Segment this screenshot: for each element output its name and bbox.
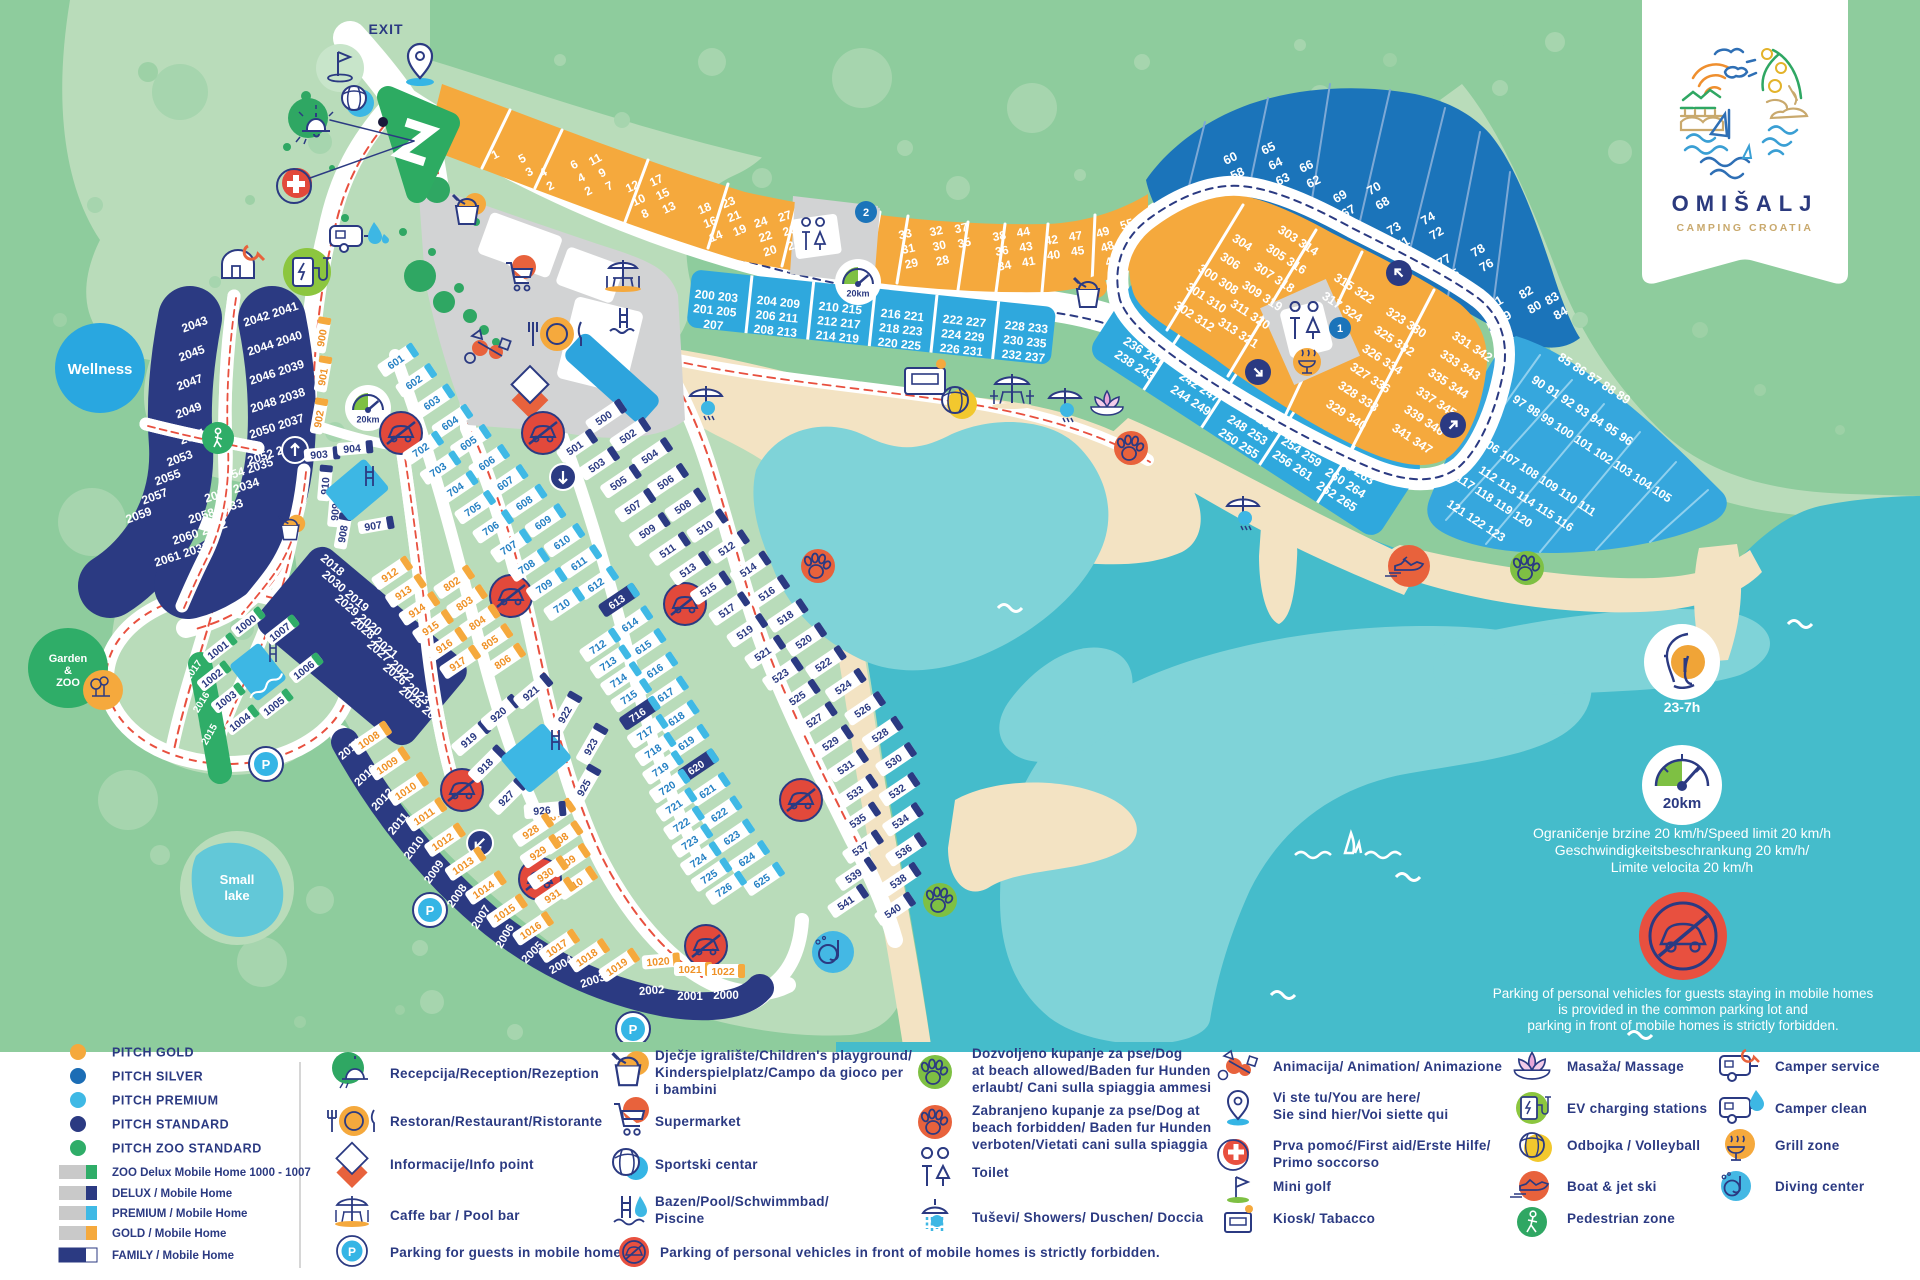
svg-text:Odbojka / Volleyball: Odbojka / Volleyball [1567,1138,1700,1153]
svg-text:Bazen/Pool/Schwimmbad/: Bazen/Pool/Schwimmbad/ [655,1194,829,1209]
svg-text:Dozvoljeno kupanje za pse/Dog: Dozvoljeno kupanje za pse/Dog [972,1046,1182,1061]
svg-text:Wellness: Wellness [68,361,133,378]
svg-text:P: P [348,1245,356,1259]
svg-text:2000: 2000 [713,990,739,1002]
svg-text:DELUX / Mobile Home: DELUX / Mobile Home [112,1188,232,1200]
svg-text:23-7h: 23-7h [1664,699,1701,715]
svg-text:Animacija/ Animation/ Animazio: Animacija/ Animation/ Animazione [1273,1059,1502,1074]
svg-text:PREMIUM / Mobile Home: PREMIUM / Mobile Home [112,1208,247,1220]
svg-text:Smalllake: Smalllake [220,872,255,903]
svg-text:erlaubt/ Cani sulla spiaggia a: erlaubt/ Cani sulla spiaggia ammesi [972,1080,1211,1095]
svg-text:Restoran/Restaurant/Ristorante: Restoran/Restaurant/Ristorante [390,1114,602,1129]
svg-text:PITCH SILVER: PITCH SILVER [112,1070,203,1084]
svg-text:Caffe bar / Pool bar: Caffe bar / Pool bar [390,1208,520,1223]
svg-text:1022: 1022 [711,966,735,978]
svg-text:2002: 2002 [638,984,665,998]
svg-text:OMIŠALJ: OMIŠALJ [1672,191,1819,216]
svg-text:Kinderspielplatz/Campo da gioc: Kinderspielplatz/Campo da gioco per [655,1065,904,1080]
svg-text:Dječje igralište/Children's pl: Dječje igralište/Children's playground/ [655,1048,912,1063]
svg-text:Sportski centar: Sportski centar [655,1157,758,1172]
svg-text:PITCH PREMIUM: PITCH PREMIUM [112,1094,219,1108]
svg-text:Grill zone: Grill zone [1775,1138,1840,1153]
svg-text:Tuševi/ Showers/ Duschen/ Docc: Tuševi/ Showers/ Duschen/ Doccia [972,1210,1204,1225]
svg-text:Parking of personal vehicles i: Parking of personal vehicles in front of… [660,1245,1160,1260]
svg-text:P: P [426,903,435,918]
svg-text:2001: 2001 [677,991,703,1003]
svg-text:Zabranjeno kupanje za pse/Dog: Zabranjeno kupanje za pse/Dog at [972,1103,1200,1118]
svg-text:1020: 1020 [646,955,670,969]
svg-text:216 221218 223220 225: 216 221218 223220 225 [877,306,925,353]
svg-text:Piscine: Piscine [655,1211,705,1226]
svg-text:Camper service: Camper service [1775,1059,1880,1074]
svg-text:Pedestrian zone: Pedestrian zone [1567,1211,1675,1226]
svg-text:Supermarket: Supermarket [655,1114,741,1129]
svg-text:904: 904 [343,443,362,456]
svg-text:903: 903 [310,449,329,462]
svg-text:228 233230 235232 237: 228 233230 235232 237 [1001,318,1049,365]
svg-text:PITCH STANDARD: PITCH STANDARD [112,1118,229,1132]
svg-text:FAMILY / Mobile Home: FAMILY / Mobile Home [112,1250,234,1262]
svg-text:20km: 20km [1663,795,1701,812]
svg-text:20km: 20km [356,414,379,424]
svg-text:Primo soccorso: Primo soccorso [1273,1155,1379,1170]
svg-text:Vi ste tu/You are here/: Vi ste tu/You are here/ [1273,1090,1420,1105]
svg-text:Mini golf: Mini golf [1273,1179,1331,1194]
svg-text:at beach allowed/Baden fur Hun: at beach allowed/Baden fur Hunden [972,1063,1211,1078]
svg-text:P: P [262,757,271,772]
svg-text:verboten/Vietati cani sulla sp: verboten/Vietati cani sulla spiaggia [972,1137,1208,1152]
svg-text:Sie sind hier/Voi siette qui: Sie sind hier/Voi siette qui [1273,1107,1448,1122]
svg-text:Kiosk/ Tabacco: Kiosk/ Tabacco [1273,1211,1375,1226]
svg-text:1021: 1021 [678,964,702,976]
svg-text:Parking for guests in mobile h: Parking for guests in mobile homes [390,1245,629,1260]
svg-text:beach forbidden/ Baden fur Hun: beach forbidden/ Baden fur Hunden [972,1120,1211,1135]
svg-text:204 209206 211208 213: 204 209206 211208 213 [753,293,801,340]
svg-text:Camper clean: Camper clean [1775,1101,1867,1116]
svg-text:Diving center: Diving center [1775,1179,1865,1194]
svg-text:Prva pomoć/First aid/Erste Hil: Prva pomoć/First aid/Erste Hilfe/ [1273,1138,1491,1153]
svg-text:EXIT: EXIT [368,21,403,37]
svg-text:210 215212 217214 219: 210 215212 217214 219 [815,299,863,346]
svg-text:i bambini: i bambini [655,1082,717,1097]
svg-text:Toilet: Toilet [972,1165,1009,1180]
svg-text:PITCH ZOO STANDARD: PITCH ZOO STANDARD [112,1142,262,1156]
svg-text:Boat & jet ski: Boat & jet ski [1567,1179,1657,1194]
svg-text:Recepcija/Reception/Rezeption: Recepcija/Reception/Rezeption [390,1066,599,1081]
svg-text:Informacije/Info point: Informacije/Info point [390,1157,534,1172]
svg-text:CAMPING CROATIA: CAMPING CROATIA [1676,222,1813,234]
svg-text:2: 2 [863,207,869,219]
svg-text:P: P [629,1022,638,1037]
svg-text:PITCH GOLD: PITCH GOLD [112,1046,194,1060]
svg-text:GOLD / Mobile Home: GOLD / Mobile Home [112,1228,226,1240]
svg-text:Masaža/ Massage: Masaža/ Massage [1567,1059,1684,1074]
svg-text:EV charging stations: EV charging stations [1567,1101,1707,1116]
svg-text:20km: 20km [846,288,869,298]
svg-text:1: 1 [1337,323,1343,335]
svg-text:222 227224 229226 231: 222 227224 229226 231 [939,312,987,359]
svg-text:ZOO Delux Mobile Home 1000 - 1: ZOO Delux Mobile Home 1000 - 1007 [112,1167,311,1179]
